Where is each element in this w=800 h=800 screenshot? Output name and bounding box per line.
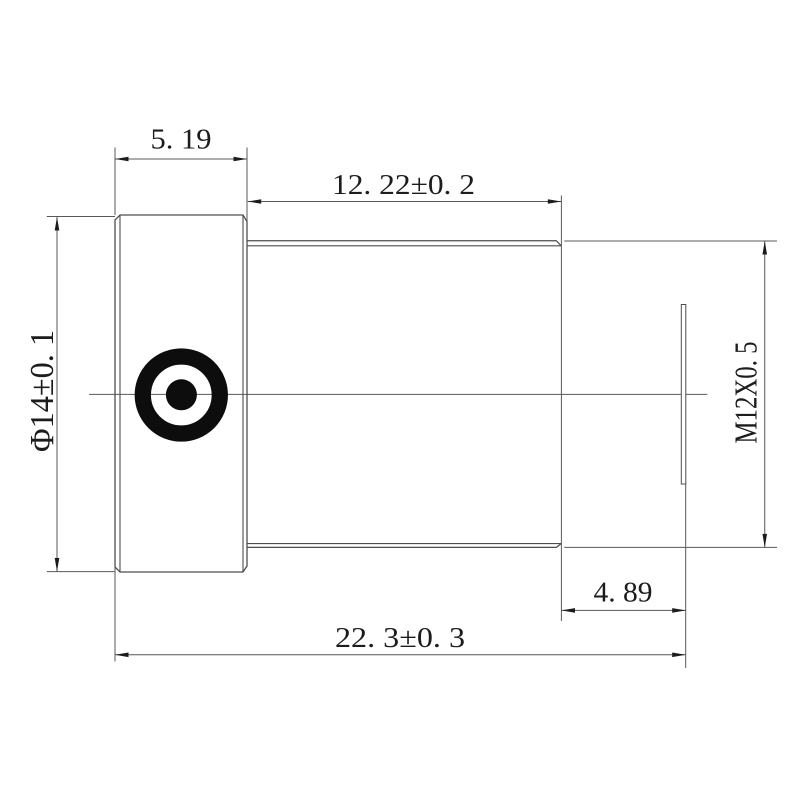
svg-text:12. 22±0. 2: 12. 22±0. 2 — [332, 169, 475, 201]
svg-text:22. 3±0. 3: 22. 3±0. 3 — [335, 622, 465, 654]
svg-text:4. 89: 4. 89 — [594, 577, 653, 609]
svg-text:5. 19: 5. 19 — [151, 124, 212, 156]
svg-text:M12X0. 5: M12X0. 5 — [728, 342, 764, 444]
svg-text:Φ14±0. 1: Φ14±0. 1 — [24, 330, 61, 452]
